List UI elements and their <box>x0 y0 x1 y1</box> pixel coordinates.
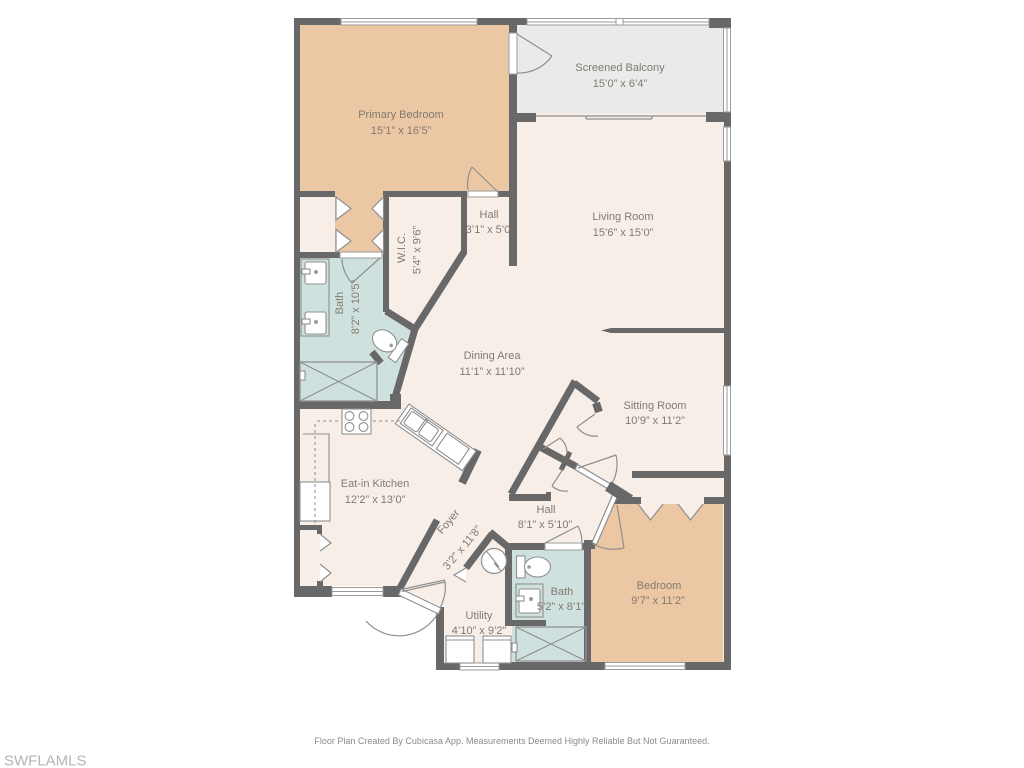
svg-text:5’2” x 8’1”: 5’2” x 8’1” <box>537 601 586 613</box>
svg-text:Hall: Hall <box>480 209 499 221</box>
svg-text:Bath: Bath <box>551 586 574 598</box>
svg-text:15’0” x 6’4”: 15’0” x 6’4” <box>593 78 648 90</box>
svg-text:Bath: Bath <box>334 292 346 315</box>
svg-text:5’4” x 9’6”: 5’4” x 9’6” <box>412 226 424 275</box>
svg-text:Primary Bedroom: Primary Bedroom <box>358 109 444 121</box>
svg-text:15’6” x 15’0”: 15’6” x 15’0” <box>593 227 654 239</box>
svg-text:W.I.C.: W.I.C. <box>396 233 408 263</box>
svg-text:Hall: Hall <box>537 504 556 516</box>
svg-text:15’1” x 16’5”: 15’1” x 16’5” <box>371 125 432 137</box>
svg-text:10’9” x 11’2”: 10’9” x 11’2” <box>625 415 685 427</box>
svg-text:Living Room: Living Room <box>592 211 653 223</box>
svg-text:Bedroom: Bedroom <box>637 580 682 592</box>
svg-text:4’10” x 9’2”: 4’10” x 9’2” <box>452 625 507 637</box>
svg-text:9’7” x 11’2”: 9’7” x 11’2” <box>631 595 685 607</box>
svg-text:Utility: Utility <box>466 610 493 622</box>
svg-text:Screened Balcony: Screened Balcony <box>575 62 665 74</box>
svg-text:3’1” x 5’0: 3’1” x 5’0 <box>466 224 511 236</box>
svg-text:12’2” x 13’0”: 12’2” x 13’0” <box>345 494 406 506</box>
svg-text:Dining Area: Dining Area <box>464 350 522 362</box>
svg-text:Floor Plan Created By Cubicasa: Floor Plan Created By Cubicasa App. Meas… <box>314 736 709 746</box>
svg-text:11’1” x 11’10”: 11’1” x 11’10” <box>459 366 524 378</box>
svg-text:Eat-in Kitchen: Eat-in Kitchen <box>341 478 409 490</box>
svg-text:SWFLAMLS: SWFLAMLS <box>4 753 87 768</box>
svg-text:8’2” x 10’5”: 8’2” x 10’5” <box>350 279 362 334</box>
svg-text:8’1” x 5’10”: 8’1” x 5’10” <box>518 519 573 531</box>
svg-text:Sitting Room: Sitting Room <box>624 400 687 412</box>
